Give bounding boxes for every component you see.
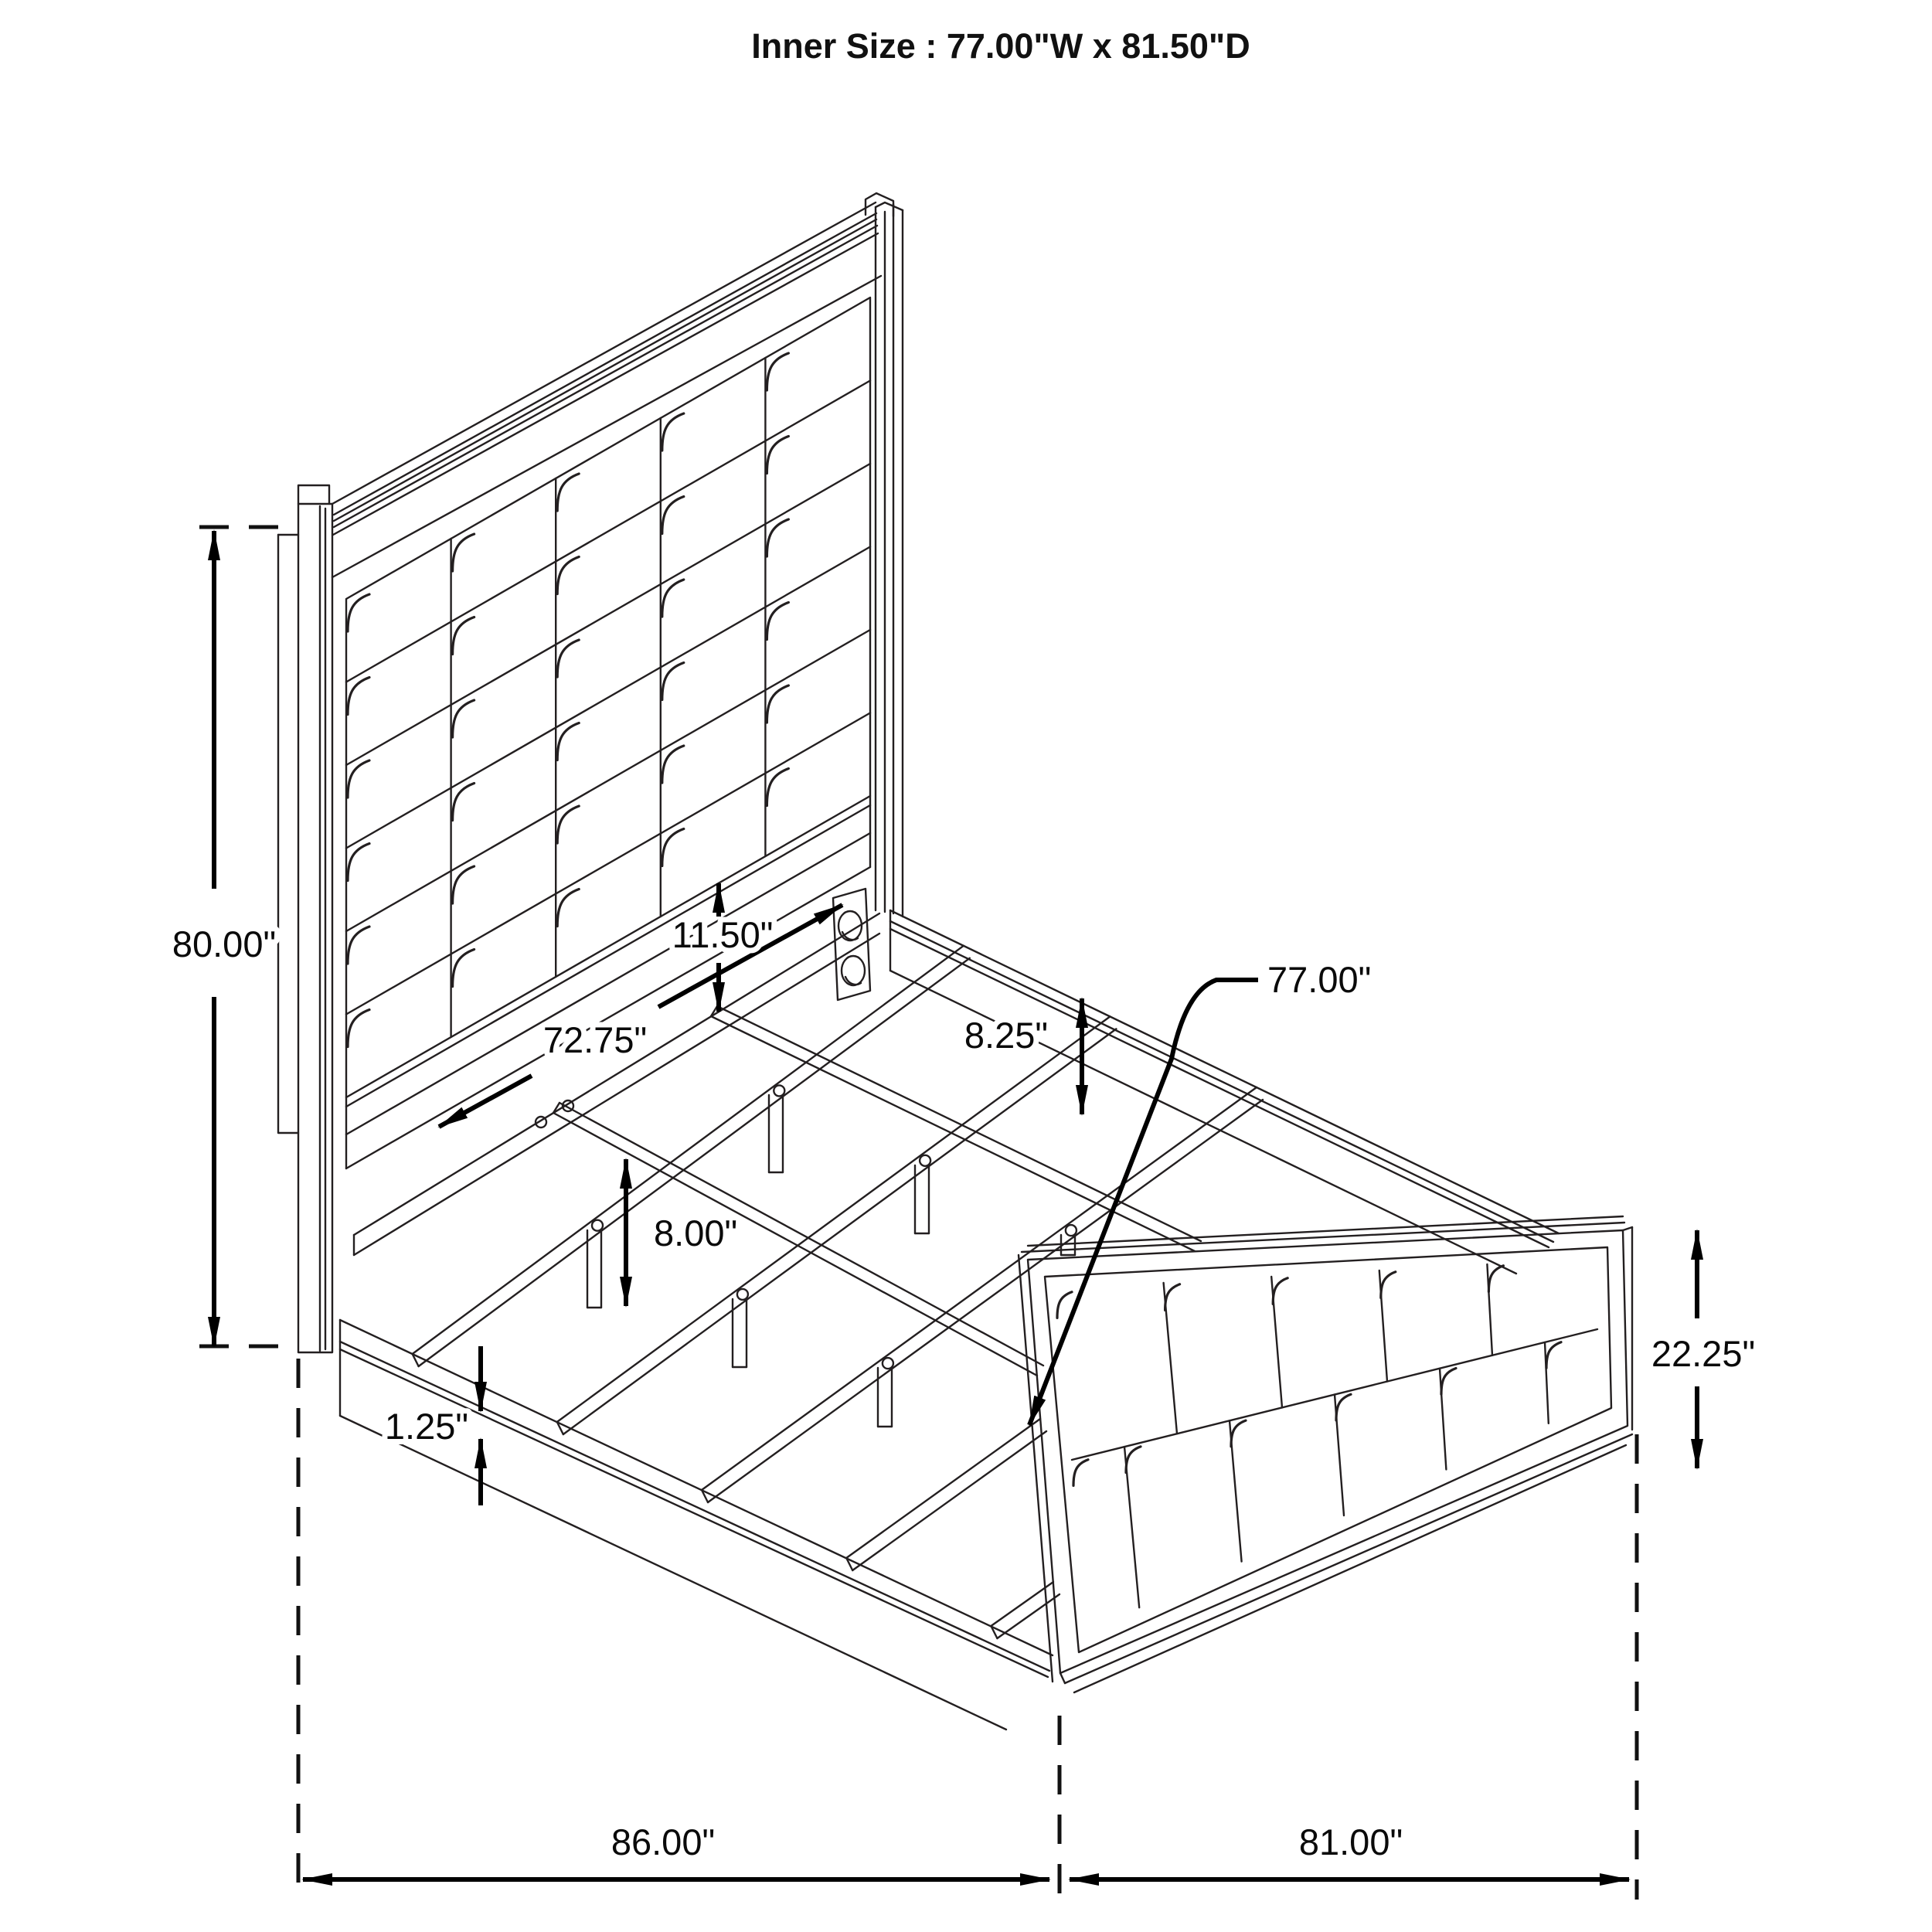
dim-label-headboard-height: 80.00" [172,923,276,964]
diagram-title: Inner Size : 77.00"W x 81.50"D [751,26,1250,66]
dim-label-rail-height: 8.25" [964,1015,1048,1056]
dim-label-panel-gap: 11.50" [672,914,774,955]
dim-label-slat-length: 77.00" [1267,959,1371,1000]
bed-dimension-diagram-page: Inner Size : 77.00"W x 81.50"D 80.00" 11… [0,0,1932,1932]
dim-label-leg-height: 8.00" [654,1213,737,1253]
dimension-labels: 80.00" 11.50" 72.75" 8.25" 77.00" 8.00" … [172,914,1755,1862]
dim-label-footboard-height: 22.25" [1651,1333,1755,1374]
extension-lines [199,527,1637,1900]
slats-drawing [413,946,1263,1638]
dim-label-overall-depth: 81.00" [1299,1821,1403,1862]
dim-label-rail-lip: 1.25" [385,1406,468,1447]
bed-dimension-diagram: Inner Size : 77.00"W x 81.50"D 80.00" 11… [0,0,1932,1932]
dim-label-cleat-length: 72.75" [543,1019,647,1060]
headboard-drawing [278,193,903,1352]
footboard-drawing [1019,1216,1632,1692]
center-rails-drawing [553,1006,1201,1376]
dim-label-overall-width: 86.00" [611,1821,715,1862]
